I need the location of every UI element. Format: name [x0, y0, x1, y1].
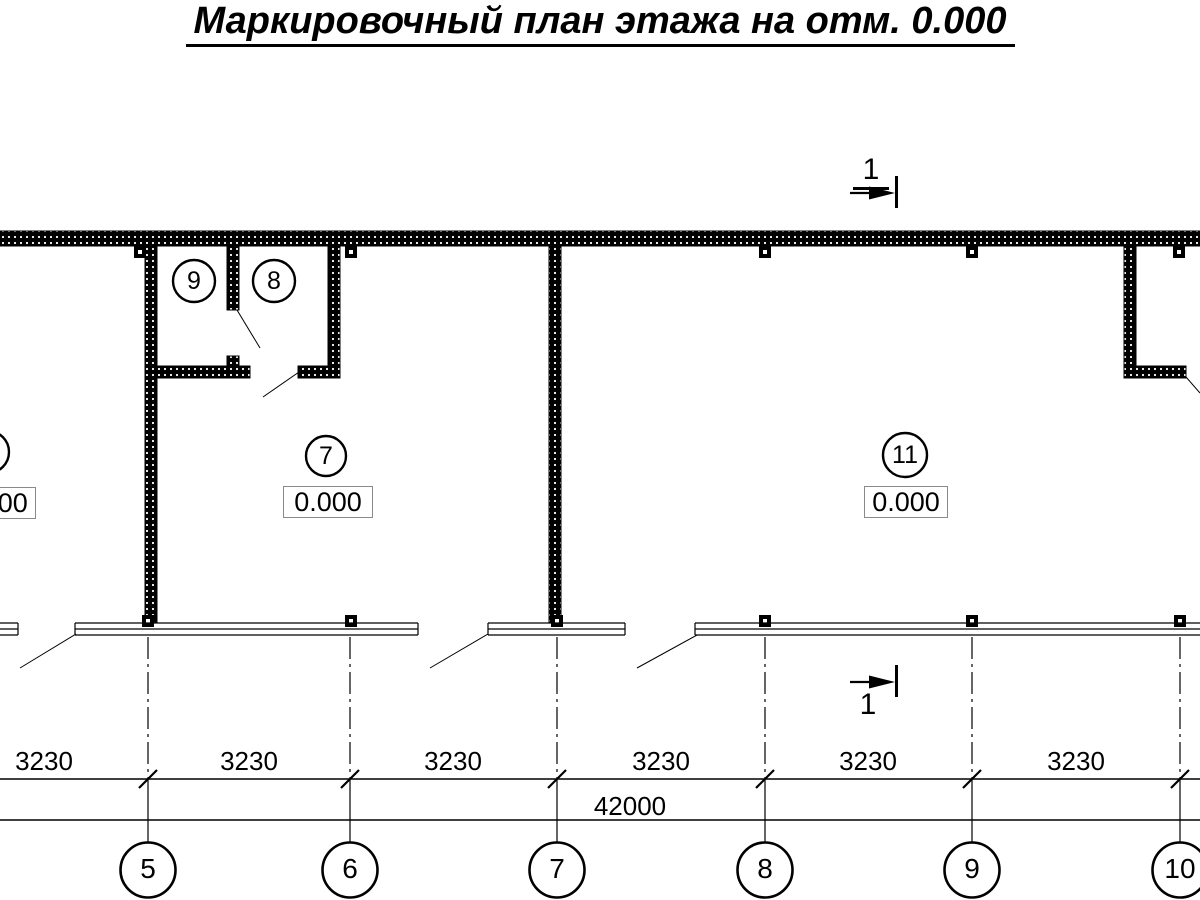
- leader-line-window-2: [430, 634, 488, 668]
- column-marker: [759, 246, 771, 258]
- floor-plan-drawing: Маркировочный план этажа на отм. 0.000 1…: [0, 0, 1200, 900]
- leader-line-window-1: [20, 634, 76, 668]
- dimension-label: 3230: [413, 748, 493, 774]
- section-mark-bottom-label: 1: [850, 690, 886, 720]
- dimension-total-label: 42000: [580, 793, 680, 819]
- wall-room9-bottom: [145, 366, 250, 378]
- axis-number-6: 6: [322, 855, 378, 883]
- window-band-left-partial: [0, 623, 18, 635]
- wall-room8-bottom-stub: [298, 366, 340, 378]
- door-swing-room8: [237, 310, 260, 348]
- partition-room9-room8: [227, 246, 239, 310]
- dimension-label: 3230: [4, 748, 84, 774]
- section-mark-top-label: 1: [853, 155, 889, 190]
- dimension-label: 3230: [828, 748, 908, 774]
- room-circle-left-partial: [0, 431, 9, 473]
- room-number-7: 7: [301, 444, 351, 469]
- column-marker: [966, 615, 978, 627]
- column-marker: [551, 615, 563, 627]
- dimension-label: 3230: [209, 748, 289, 774]
- column-marker: [759, 615, 771, 627]
- exterior-top-wall: [0, 231, 1200, 246]
- axis-number-8: 8: [737, 855, 793, 883]
- column-marker: [142, 615, 154, 627]
- column-markers-top: [134, 246, 1185, 258]
- room-number-9: 9: [169, 269, 219, 294]
- door-swing-right-room: [1186, 377, 1200, 393]
- wall-right-room-bottom: [1124, 366, 1186, 378]
- pilaster-room9: [227, 356, 239, 366]
- axis-number-9: 9: [944, 855, 1000, 883]
- leader-line-window-3: [637, 635, 697, 668]
- dimension-label: 3230: [1036, 748, 1116, 774]
- elevation-box-left-partial: 0.000: [0, 487, 36, 519]
- room-number-8: 8: [249, 269, 299, 294]
- page-title: Маркировочный план этажа на отм. 0.000: [0, 2, 1200, 47]
- column-marker: [345, 246, 357, 258]
- column-marker: [966, 246, 978, 258]
- column-marker: [345, 615, 357, 627]
- wall-right-room: [1124, 246, 1136, 378]
- column-marker: [1174, 615, 1186, 627]
- plan-linework: [0, 0, 1200, 900]
- window-band-1: [75, 623, 418, 635]
- dimension-label: 3230: [621, 748, 701, 774]
- column-marker: [1173, 246, 1185, 258]
- axis-number-10: 10: [1152, 855, 1200, 883]
- column-markers-bottom: [142, 615, 1186, 627]
- wall-axis-7: [549, 246, 561, 622]
- elevation-box-7: 0.000: [283, 486, 373, 518]
- elevation-box-11: 0.000: [864, 486, 948, 518]
- room-number-11: 11: [880, 443, 930, 468]
- wall-axis-5: [145, 246, 157, 622]
- page-title-text: Маркировочный план этажа на отм. 0.000: [186, 2, 1015, 47]
- column-marker: [134, 246, 146, 258]
- door-swing-room7: [263, 372, 299, 397]
- wall-room8-right: [328, 246, 340, 378]
- axis-number-7: 7: [529, 855, 585, 883]
- axis-number-5: 5: [120, 855, 176, 883]
